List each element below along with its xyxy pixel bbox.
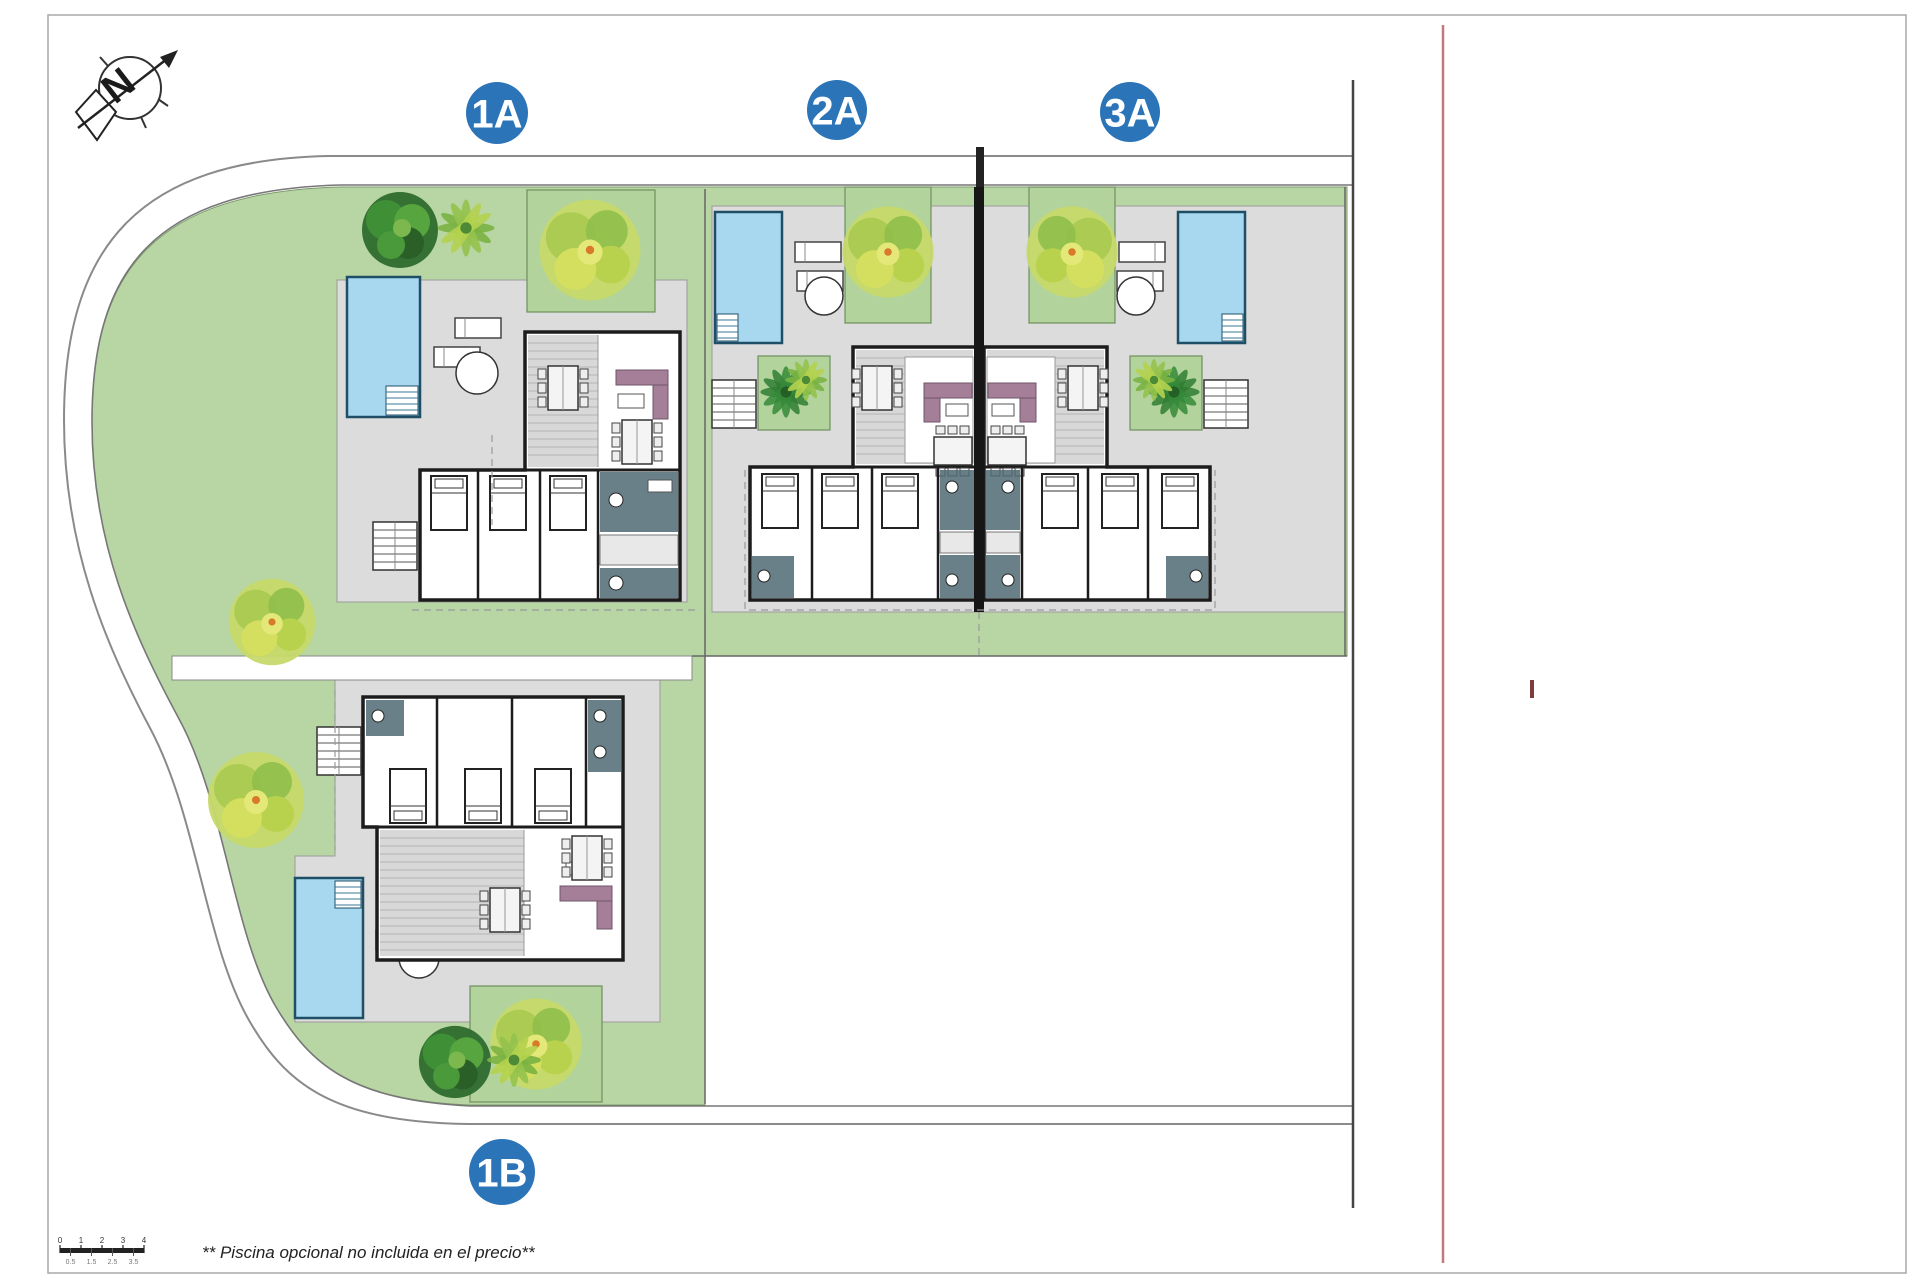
villa-2a-badge-label: 2A xyxy=(811,89,862,133)
scale-sublabel: 0.5 xyxy=(66,1259,76,1266)
site-plan-drawing: N 1A 2A 3A 1B 0 1 2 3 4 0.5 1.5 2.5 3.5 … xyxy=(0,0,1920,1280)
scale-label: 2 xyxy=(100,1236,105,1245)
scale-sublabel: 1.5 xyxy=(87,1259,97,1266)
pool-1b xyxy=(295,878,363,1018)
scale-label: 4 xyxy=(142,1236,147,1245)
villa-1a-badge[interactable]: 1A xyxy=(466,82,528,144)
sofa-1b xyxy=(560,886,612,901)
villa-1b-badge-label: 1B xyxy=(476,1151,527,1195)
scale-sublabel: 3.5 xyxy=(129,1259,139,1266)
sofa-1a xyxy=(616,370,668,385)
villa-3a-badge-label: 3A xyxy=(1104,91,1155,135)
access-path xyxy=(172,656,692,680)
pool-1a xyxy=(347,277,420,417)
scale-label: 0 xyxy=(58,1236,63,1245)
scale-label: 3 xyxy=(121,1236,126,1245)
scale-sublabel: 2.5 xyxy=(108,1259,118,1266)
villa-3a-badge[interactable]: 3A xyxy=(1100,82,1160,142)
bathroom-1b xyxy=(366,700,404,736)
disclaimer-note: ** Piscina opcional no incluida en el pr… xyxy=(202,1243,536,1262)
villa-2a-badge[interactable]: 2A xyxy=(807,80,867,140)
party-wall xyxy=(974,187,984,612)
villa-1a-badge-label: 1A xyxy=(471,92,522,136)
site-plan-page: N 1A 2A 3A 1B 0 1 2 3 4 0.5 1.5 2.5 3.5 … xyxy=(0,0,1920,1280)
scale-label: 1 xyxy=(79,1236,84,1245)
patio-table-1a xyxy=(456,352,498,394)
villa-1b-badge[interactable]: 1B xyxy=(469,1139,535,1205)
